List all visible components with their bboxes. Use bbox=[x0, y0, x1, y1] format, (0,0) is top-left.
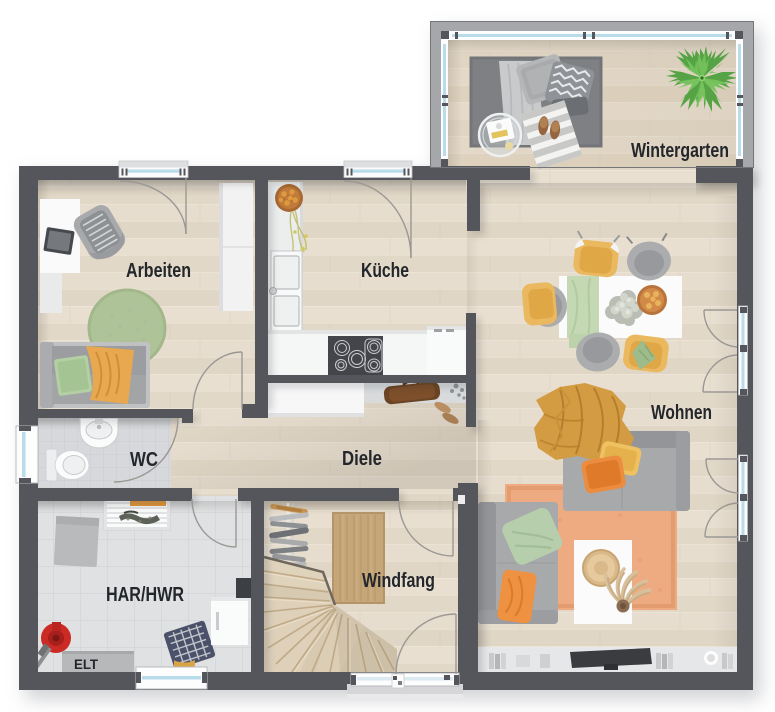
svg-text:WC: WC bbox=[130, 449, 158, 471]
svg-text:HAR/HWR: HAR/HWR bbox=[106, 584, 184, 606]
svg-text:Wohnen: Wohnen bbox=[651, 402, 712, 424]
svg-text:ELT: ELT bbox=[74, 656, 98, 672]
svg-text:Küche: Küche bbox=[361, 260, 409, 282]
svg-text:Diele: Diele bbox=[342, 448, 382, 470]
svg-text:Arbeiten: Arbeiten bbox=[126, 260, 191, 282]
svg-text:Wintergarten: Wintergarten bbox=[631, 140, 729, 162]
svg-text:Windfang: Windfang bbox=[362, 570, 435, 592]
